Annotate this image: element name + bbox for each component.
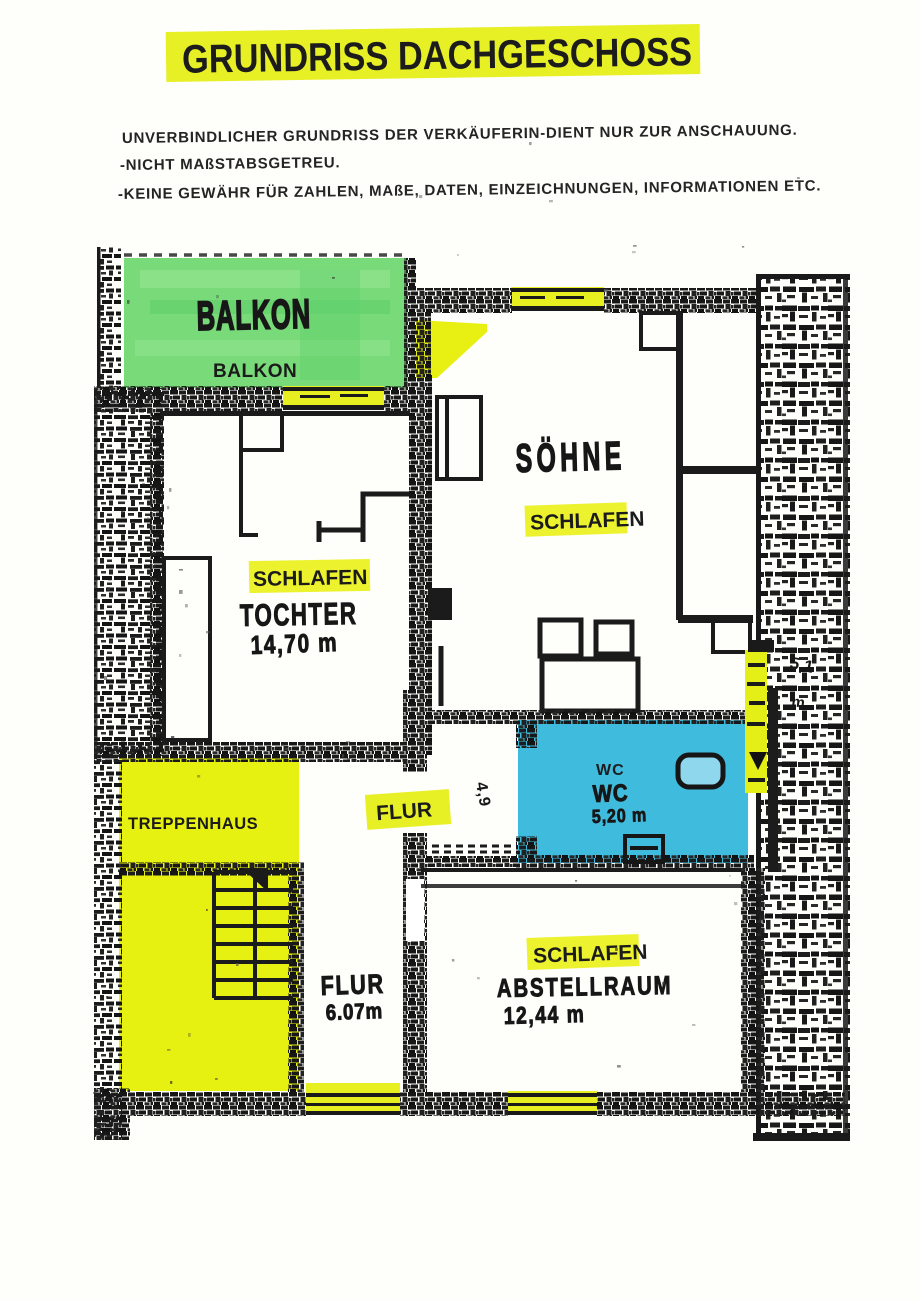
svg-text:6.07m: 6.07m [325,1000,383,1026]
svg-text:BALKON: BALKON [213,361,297,382]
svg-text:m: m [790,693,806,712]
svg-text:FLUR: FLUR [375,798,432,825]
svg-text:GRUNDRISS DACHGESCHOSS: GRUNDRISS DACHGESCHOSS [182,30,693,82]
svg-text:-NICHT MAßSTABSGETREU.: -NICHT MAßSTABSGETREU. [120,154,341,174]
svg-text:WC: WC [592,779,629,807]
svg-text:14,70 m: 14,70 m [250,628,338,660]
svg-text:5,20 m: 5,20 m [591,804,647,827]
svg-text:SCHLAFEN: SCHLAFEN [530,508,645,535]
svg-text:SCHLAFEN: SCHLAFEN [253,566,368,591]
svg-text:ABSTELLRAUM: ABSTELLRAUM [497,971,673,1003]
svg-text:12,44 m: 12,44 m [503,1000,585,1030]
svg-text:WC: WC [596,762,625,779]
svg-text:SÖHNE: SÖHNE [515,434,626,481]
svg-text:TREPPENHAUS: TREPPENHAUS [128,815,258,833]
svg-text:FLUR: FLUR [320,970,385,1002]
svg-text:SCHLAFEN: SCHLAFEN [533,941,648,968]
svg-text:TOCHTER: TOCHTER [240,596,358,632]
svg-text:BALKON: BALKON [196,292,311,340]
